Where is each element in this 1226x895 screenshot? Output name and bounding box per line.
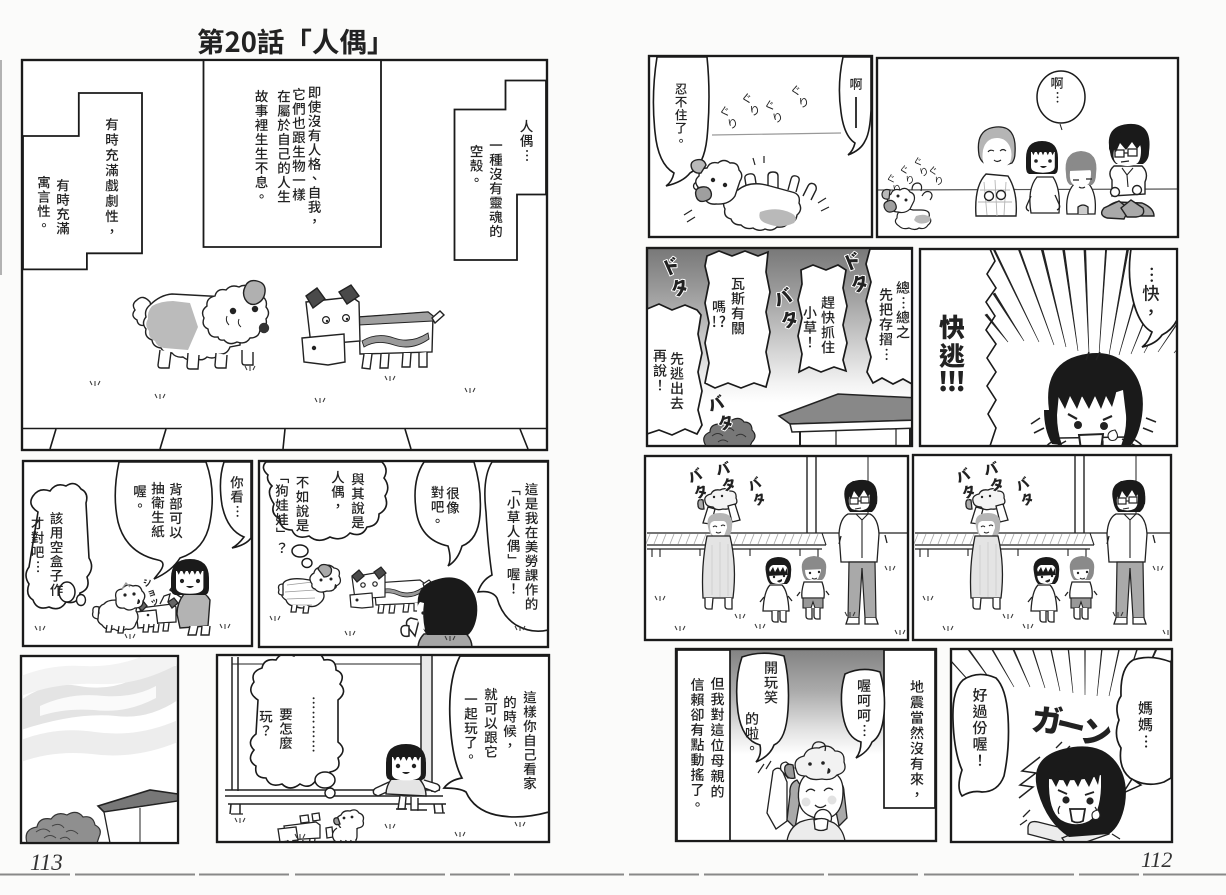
svg-text:112: 112	[1141, 847, 1172, 872]
svg-text:113: 113	[30, 850, 63, 875]
